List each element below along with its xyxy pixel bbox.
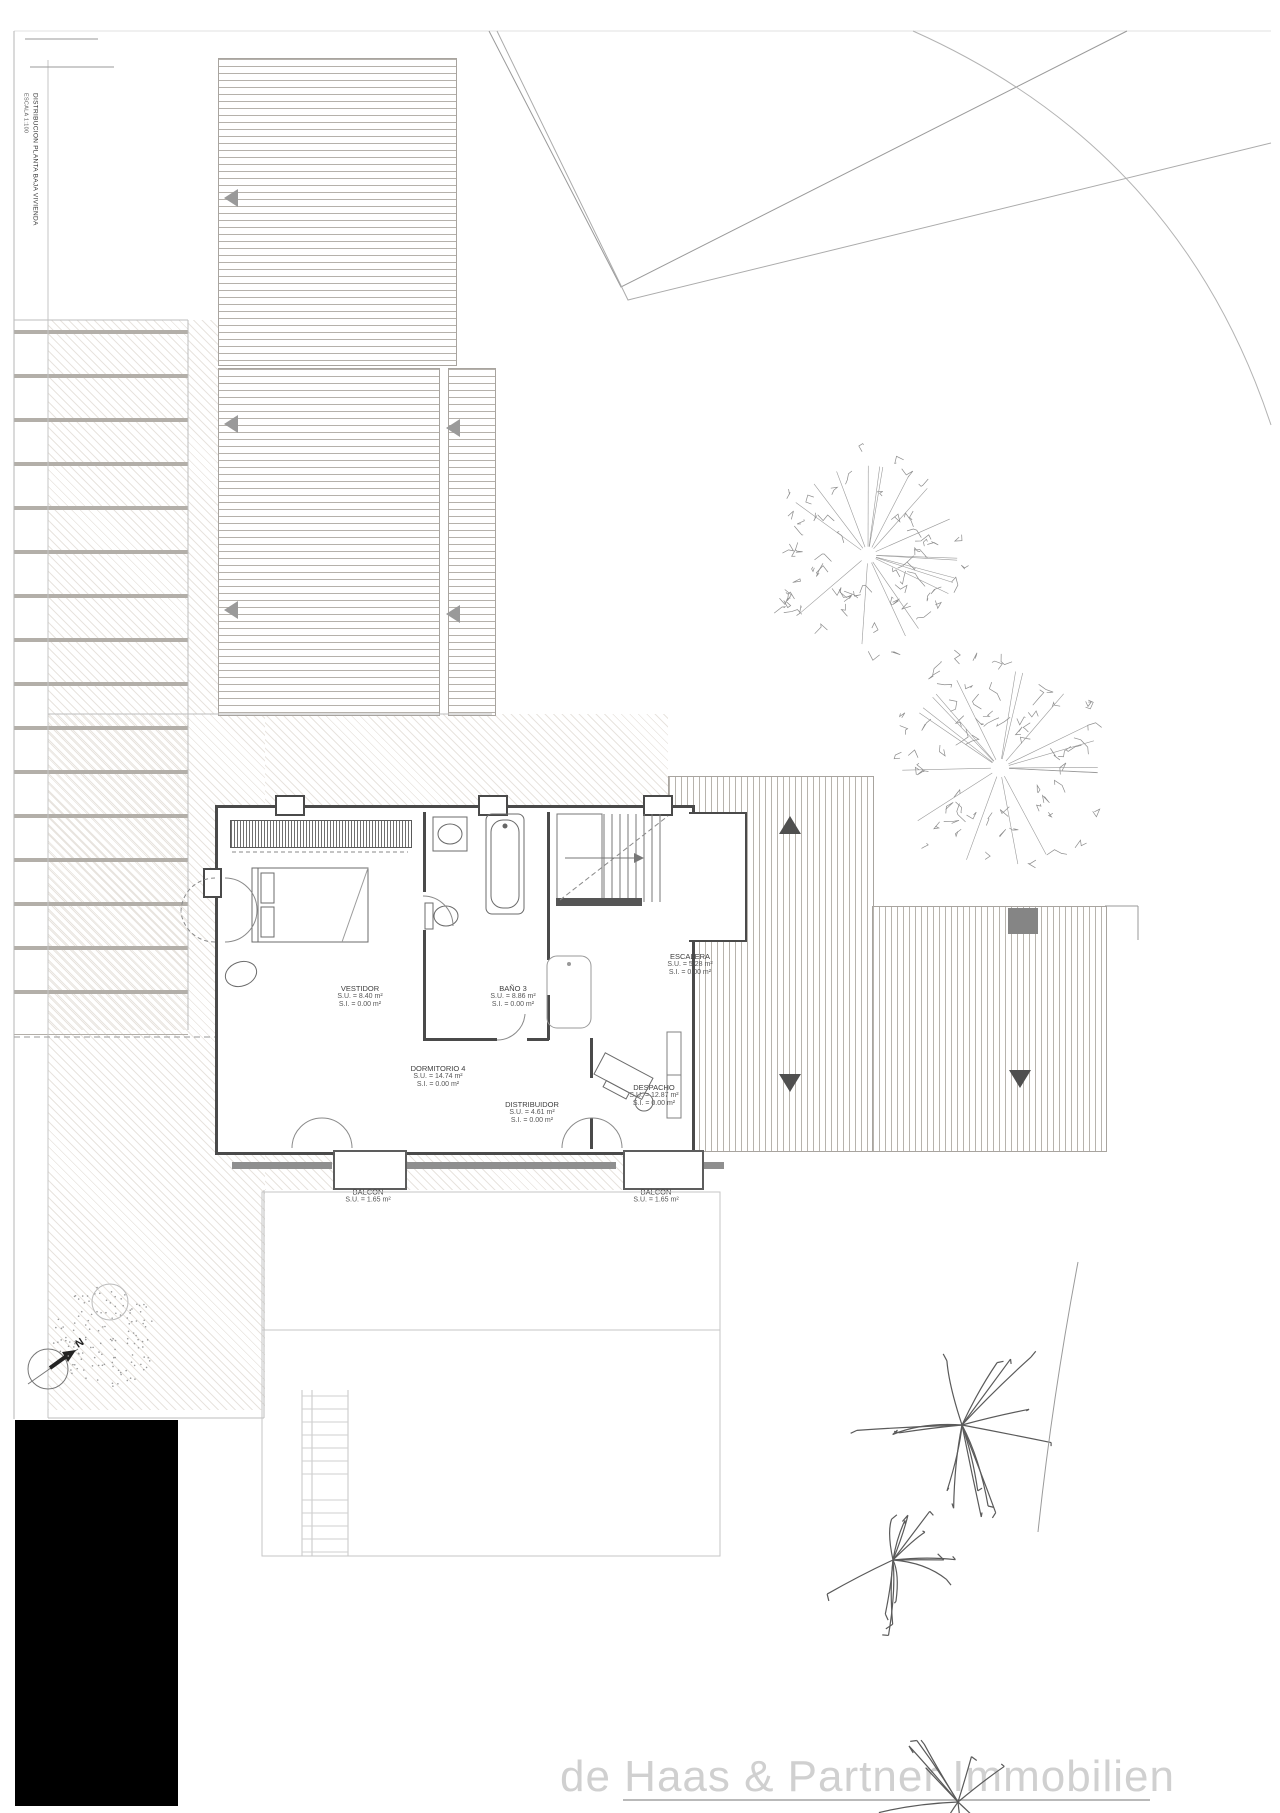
roof-deck-lower bbox=[218, 368, 440, 716]
label-escalera: ESCALERA S.U. = 5.28 m² S.I. = 0.00 m² bbox=[667, 952, 712, 978]
railing-segment-mid bbox=[406, 1162, 616, 1169]
pergola-beams bbox=[14, 330, 188, 1035]
wall-bath-stair-upper bbox=[547, 812, 550, 960]
top-wall-pillar-1 bbox=[275, 795, 305, 816]
wall-dorm-bath-upper bbox=[423, 812, 426, 892]
roof-deck-lower-right bbox=[448, 368, 496, 716]
label-vestidor: VESTIDOR S.U. = 8.40 m² S.I. = 0.00 m² bbox=[337, 984, 382, 1010]
label-bano-3: BAÑO 3 S.U. = 8.86 m² S.I. = 0.00 m² bbox=[490, 984, 535, 1010]
lower-storey-outline bbox=[262, 1192, 720, 1556]
path-edge-curve bbox=[1038, 1262, 1078, 1532]
left-wall-pillar bbox=[203, 868, 222, 898]
drawing-scale: ESCALA 1:100 bbox=[20, 93, 29, 226]
label-distribuidor: DISTRIBUIDOR S.U. = 4.61 m² S.I. = 0.00 … bbox=[505, 1100, 559, 1126]
balcony-2 bbox=[623, 1150, 704, 1190]
wall-bath-south-b bbox=[527, 1038, 549, 1041]
label-dormitorio-4: DORMITORIO 4 S.U. = 14.74 m² S.I. = 0.00… bbox=[411, 1064, 466, 1090]
plan-outer-wall bbox=[215, 805, 695, 1155]
label-balcon-2: BALCON S.U. = 1.65 m² bbox=[633, 1187, 678, 1204]
top-wall-pillar-2 bbox=[478, 795, 508, 816]
balcony-1 bbox=[333, 1150, 407, 1190]
exterior-stair-treads bbox=[302, 1396, 348, 1552]
top-wall-pillar-3 bbox=[643, 795, 673, 816]
palm-sketch-2 bbox=[827, 1511, 955, 1635]
wall-hall-despacho-a bbox=[590, 1038, 593, 1078]
agency-watermark: de Haas & Partner Immobilien bbox=[560, 1752, 1175, 1802]
roof-deck-upper bbox=[218, 58, 457, 366]
redacted-title-block bbox=[15, 1420, 178, 1806]
label-balcon-1: BALCON S.U. = 1.65 m² bbox=[345, 1187, 390, 1204]
wall-bath-south-a bbox=[423, 1038, 497, 1041]
wardrobe-hanging-rail bbox=[230, 820, 412, 848]
wall-hall-despacho-b bbox=[590, 1118, 593, 1149]
tree-sketch-1 bbox=[774, 444, 968, 661]
drawing-title: DISTRIBUCION PLANTA BAJA VIVIENDA bbox=[29, 93, 40, 226]
wall-dorm-bath-lower bbox=[423, 930, 426, 1040]
sheet-title-vertical: DISTRIBUCION PLANTA BAJA VIVIENDA ESCALA… bbox=[20, 93, 40, 226]
stair-bumpout bbox=[689, 812, 747, 942]
roof-ridge-right bbox=[872, 906, 1107, 1152]
wall-bath-stair-lower bbox=[547, 995, 550, 1040]
palm-sketch-1 bbox=[851, 1351, 1051, 1518]
roofside-hatch-strip bbox=[188, 320, 218, 714]
tree-sketch-2 bbox=[894, 650, 1101, 868]
label-despacho: DESPACHO S.U. = 12.87 m² S.I. = 0.00 m² bbox=[629, 1083, 678, 1109]
railing-segment-right bbox=[702, 1162, 724, 1169]
floor-plan-sheet: DISTRIBUCION PLANTA BAJA VIVIENDA ESCALA… bbox=[0, 0, 1280, 1813]
railing-segment-left bbox=[232, 1162, 332, 1169]
